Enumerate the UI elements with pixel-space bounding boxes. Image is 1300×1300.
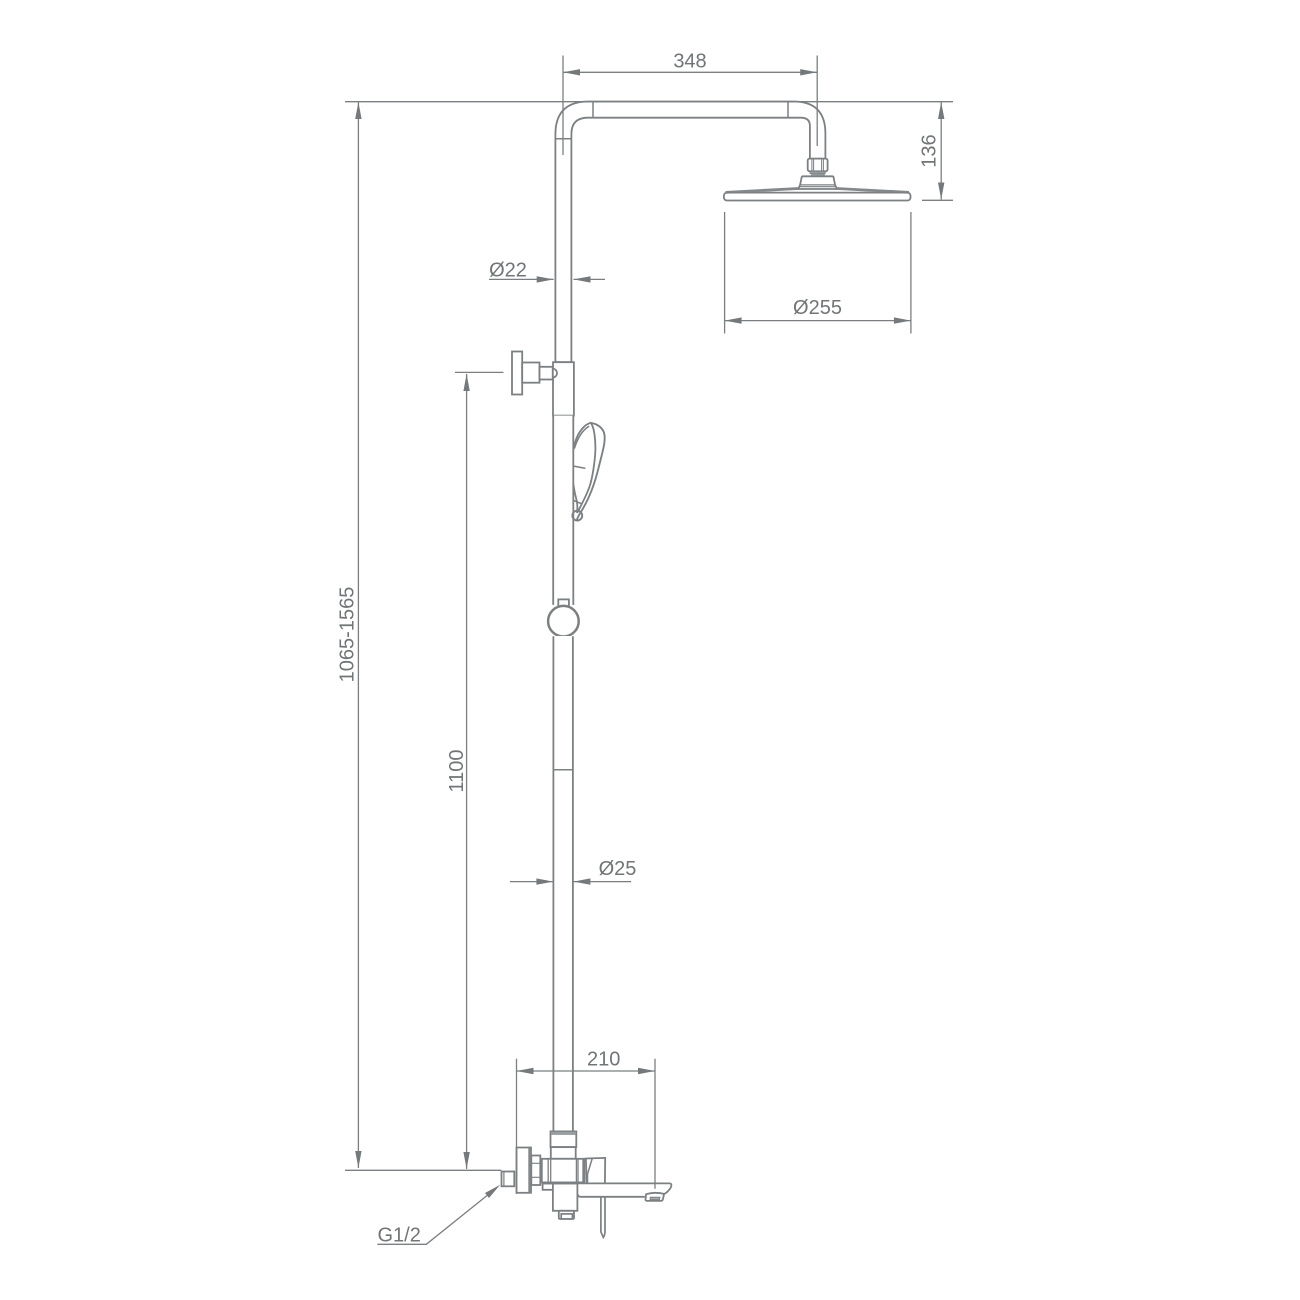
- svg-text:348: 348: [673, 51, 706, 73]
- svg-text:Ø255: Ø255: [793, 297, 842, 319]
- svg-text:G1/2: G1/2: [378, 1225, 421, 1247]
- svg-text:Ø25: Ø25: [599, 858, 637, 880]
- svg-text:Ø22: Ø22: [489, 260, 527, 282]
- svg-text:210: 210: [587, 1049, 620, 1071]
- svg-text:1065-1565: 1065-1565: [336, 587, 358, 683]
- svg-text:1100: 1100: [446, 749, 468, 792]
- svg-text:136: 136: [919, 134, 941, 167]
